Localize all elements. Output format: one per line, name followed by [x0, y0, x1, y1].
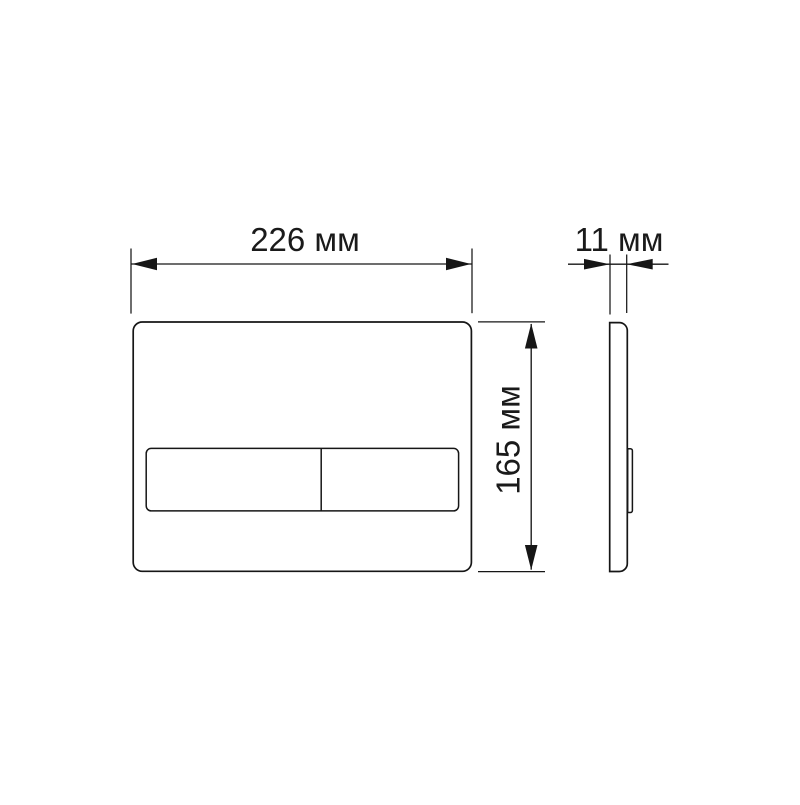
svg-text:11 мм: 11 мм — [575, 221, 664, 258]
svg-text:226 мм: 226 мм — [250, 221, 360, 258]
svg-text:165 мм: 165 мм — [490, 385, 527, 495]
